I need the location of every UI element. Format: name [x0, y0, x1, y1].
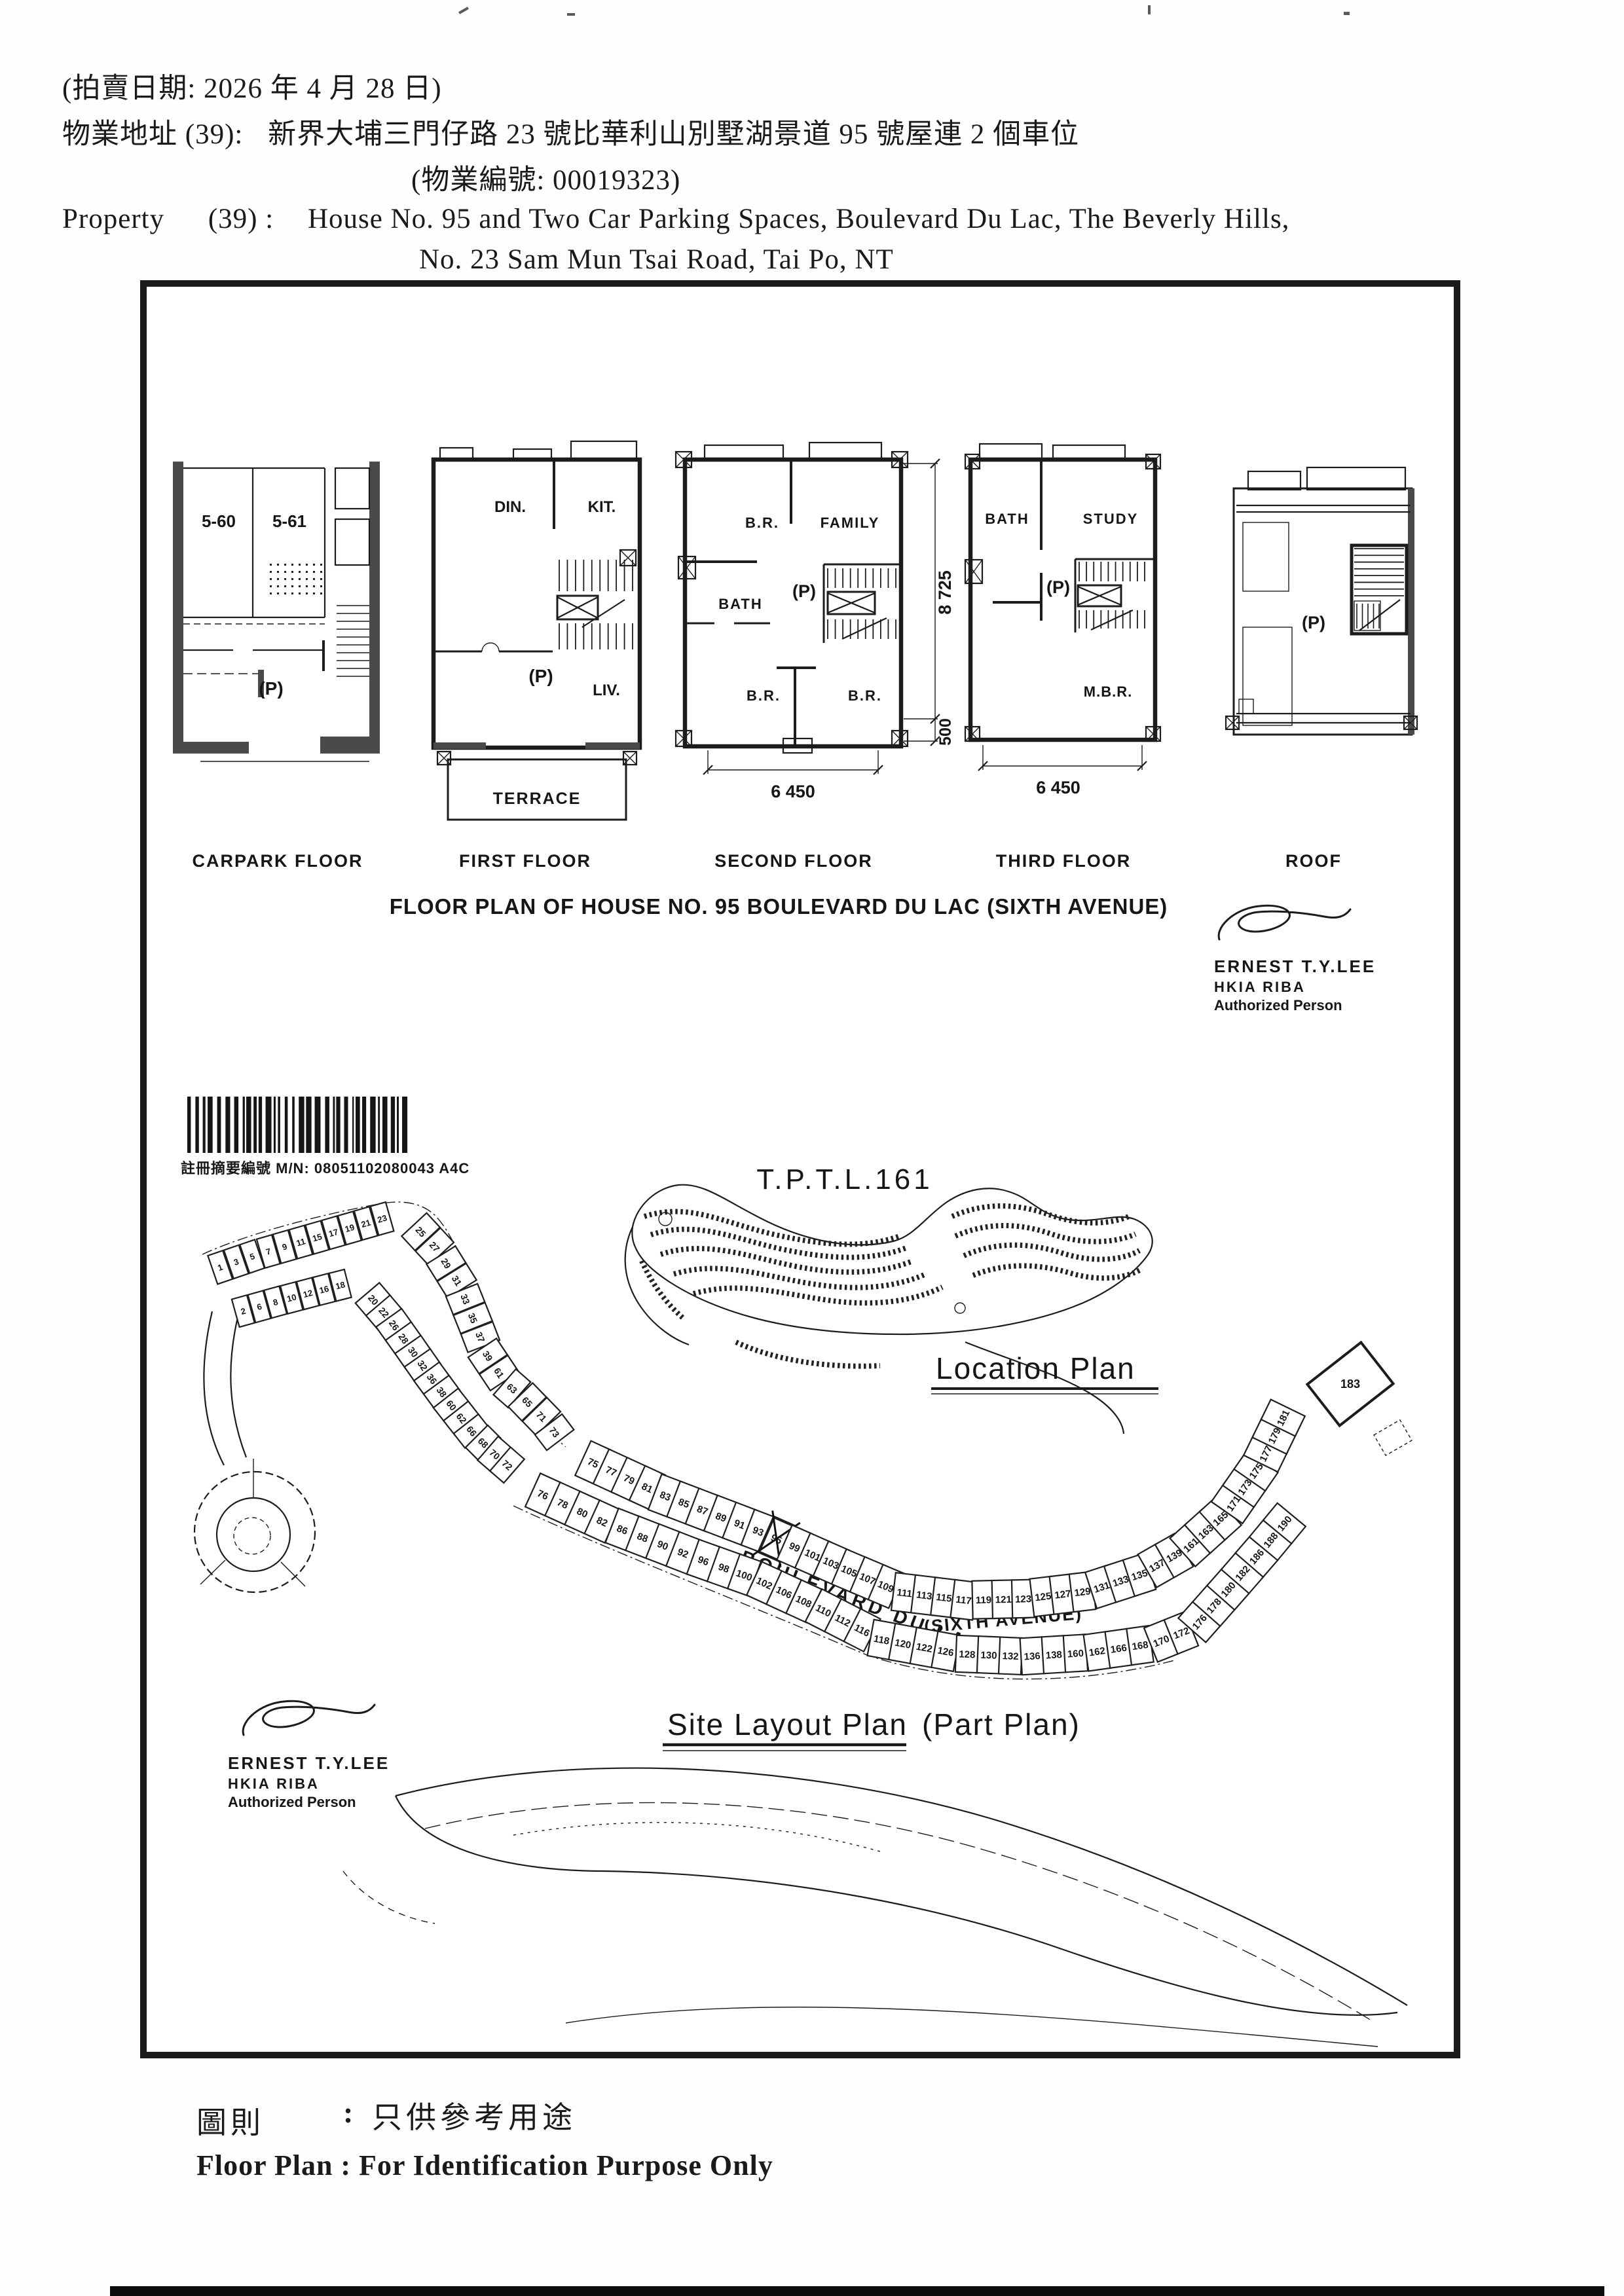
- second-family-label: FAMILY: [821, 515, 880, 531]
- barcode-bar: [315, 1097, 321, 1153]
- architect-signature-top: ERNEST T.Y.LEE HKIA RIBA Authorized Pers…: [1214, 905, 1376, 1013]
- svg-text:119: 119: [976, 1595, 992, 1607]
- barcode-bar: [378, 1097, 380, 1153]
- barcode-bar: [397, 1097, 399, 1153]
- second-dim-500: 500: [936, 718, 955, 746]
- property-english-line: Property (39) : House No. 95 and Two Car…: [62, 203, 1289, 235]
- site-lot-183: 183: [1307, 1342, 1393, 1425]
- second-dim-6450: 6 450: [771, 782, 815, 801]
- architect-signature-bottom: ERNEST T.Y.LEE HKIA RIBA Authorized Pers…: [228, 1701, 390, 1810]
- first-liv-label: LIV.: [593, 682, 620, 699]
- roof-p-label: (P): [1302, 613, 1325, 632]
- architect-role: Authorized Person: [228, 1794, 356, 1810]
- site-plan-caption: Site Layout Plan(Part Plan): [667, 1707, 1080, 1741]
- carpark-stall-1-label: 5-60: [202, 511, 236, 531]
- scan-edge-strip: [110, 2286, 1604, 2296]
- third-mbr-label: M.B.R.: [1084, 683, 1132, 700]
- barcode-bar: [203, 1097, 206, 1153]
- svg-text:138: 138: [1045, 1649, 1062, 1661]
- barcode-bar: [333, 1097, 335, 1153]
- caption-second-floor: SECOND FLOOR: [714, 851, 873, 871]
- barcode-bar: [352, 1097, 354, 1153]
- scan-speck: [1344, 12, 1350, 15]
- architect-name: ERNEST T.Y.LEE: [228, 1753, 390, 1773]
- footer-zh-value: 只供參考用途: [372, 2094, 576, 2137]
- third-floor-plan: 6 450 BATH STUDY (P) M.B.R.: [965, 444, 1160, 797]
- barcode-bar: [208, 1097, 213, 1153]
- second-floor-plan: 8 725 500 6 450 B.R. FAMILY BATH (P) B.R…: [676, 443, 955, 801]
- site-lot: 130: [977, 1636, 1001, 1673]
- svg-text:136: 136: [1024, 1650, 1041, 1662]
- svg-text:115: 115: [935, 1592, 952, 1605]
- roof-plan: (P): [1226, 467, 1417, 735]
- property-english-line2: No. 23 Sam Mun Tsai Road, Tai Po, NT: [419, 244, 894, 276]
- barcode-bar: [344, 1097, 348, 1153]
- third-study-label: STUDY: [1083, 511, 1139, 527]
- first-terrace-label: TERRACE: [493, 790, 581, 808]
- property-number-line: (物業編號: 00019323): [411, 157, 680, 198]
- barcode: [187, 1097, 407, 1153]
- property-index: (39) :: [208, 204, 274, 234]
- barcode-bar: [234, 1097, 239, 1153]
- scan-speck: [567, 13, 575, 16]
- carpark-floor-plan: 5-60 5-61 (P): [173, 462, 380, 761]
- caption-first-floor: FIRST FLOOR: [459, 851, 591, 871]
- property-address-value: 新界大埔三門仔路 23 號比華利山別墅湖景道 95 號屋連 2 個車位: [268, 119, 1079, 150]
- footer-zh-label: 圖則: [196, 2099, 265, 2142]
- third-dim-6450: 6 450: [1036, 778, 1080, 797]
- barcode-bar: [356, 1097, 360, 1153]
- svg-text:117: 117: [955, 1594, 972, 1607]
- caption-roof: ROOF: [1285, 851, 1342, 871]
- footer-en-line: Floor Plan : For Identification Purpose …: [196, 2149, 773, 2182]
- second-p-label: (P): [792, 581, 816, 601]
- barcode-label: 註冊摘要編號 M/N: 08051102080043 A4C: [181, 1160, 470, 1176]
- plan-sheet-frame: 5-60 5-61 (P): [140, 280, 1460, 2058]
- second-br2-label: B.R.: [747, 687, 781, 704]
- barcode-bar: [217, 1097, 221, 1153]
- property-address-line: 物業地址 (39): 新界大埔三門仔路 23 號比華利山別墅湖景道 95 號屋連…: [62, 111, 1079, 152]
- barcode-bar: [370, 1097, 375, 1153]
- barcode-bar: [195, 1097, 198, 1153]
- contour-lines: [343, 1768, 1407, 2047]
- architect-name: ERNEST T.Y.LEE: [1214, 957, 1376, 976]
- barcode-bar: [259, 1097, 262, 1153]
- svg-text:113: 113: [915, 1590, 932, 1603]
- second-br1-label: B.R.: [745, 515, 779, 531]
- second-dim-8725: 8 725: [935, 570, 955, 615]
- barcode-bar: [187, 1097, 191, 1153]
- carpark-p-label: (P): [259, 678, 283, 699]
- barcode-bar: [362, 1097, 366, 1153]
- property-label: Property: [62, 204, 164, 234]
- second-bath-label: BATH: [718, 596, 762, 612]
- barcode-bar: [278, 1097, 280, 1153]
- signature-scribble: [1219, 905, 1350, 939]
- first-p-label: (P): [528, 666, 553, 686]
- svg-text:125: 125: [1034, 1590, 1052, 1603]
- svg-text:111: 111: [896, 1587, 913, 1600]
- scan-speck: [1148, 5, 1151, 14]
- svg-text:132: 132: [1002, 1650, 1019, 1662]
- scan-speck: [458, 7, 469, 14]
- barcode-bar: [285, 1097, 288, 1153]
- svg-text:121: 121: [995, 1594, 1012, 1606]
- first-floor-plan: DIN. KIT. (P) LIV. TERRACE: [434, 441, 640, 820]
- barcode-bar: [292, 1097, 295, 1153]
- third-p-label: (P): [1046, 577, 1070, 597]
- footer-zh-colon: :: [343, 2095, 357, 2130]
- barcode-bar: [225, 1097, 230, 1153]
- barcode-bar: [336, 1097, 340, 1153]
- barcode-bar: [274, 1097, 276, 1153]
- svg-text:123: 123: [1015, 1594, 1031, 1605]
- architect-quals: HKIA RIBA: [228, 1776, 320, 1792]
- property-value-en: House No. 95 and Two Car Parking Spaces,…: [308, 204, 1290, 234]
- barcode-bar: [391, 1097, 395, 1153]
- first-kit-label: KIT.: [588, 498, 616, 516]
- barcode-bar: [402, 1097, 407, 1153]
- barcode-bar: [243, 1097, 245, 1153]
- barcode-bar: [325, 1097, 329, 1153]
- location-plan-caption: Location Plan: [936, 1351, 1135, 1385]
- first-din-label: DIN.: [494, 498, 526, 516]
- svg-text:129: 129: [1074, 1586, 1092, 1599]
- caption-carpark-floor: CARPARK FLOOR: [193, 851, 363, 871]
- property-address-label: 物業地址 (39):: [62, 119, 243, 150]
- site-lot: 136: [1020, 1637, 1044, 1675]
- third-bath-label: BATH: [985, 511, 1029, 527]
- svg-text:183: 183: [1340, 1377, 1360, 1391]
- site-lot: 128: [955, 1635, 979, 1673]
- location-plan: T.P.T.L.161 Location Plan: [625, 1163, 1158, 1434]
- site-lot: 132: [999, 1637, 1022, 1675]
- tptl-lot-title: T.P.T.L.161: [756, 1163, 932, 1195]
- svg-text:168: 168: [1132, 1639, 1149, 1652]
- barcode-bar: [266, 1097, 272, 1153]
- barcode-bar: [382, 1097, 388, 1153]
- second-br3-label: B.R.: [848, 687, 882, 704]
- floor-plan-title: FLOOR PLAN OF HOUSE NO. 95 BOULEVARD DU …: [390, 894, 1168, 919]
- caption-third-floor: THIRD FLOOR: [996, 851, 1131, 871]
- carpark-stall-2-label: 5-61: [272, 511, 306, 531]
- svg-text:128: 128: [959, 1649, 976, 1660]
- svg-text:166: 166: [1110, 1643, 1128, 1656]
- plan-sheet-graphics: 5-60 5-61 (P): [147, 287, 1454, 2052]
- site-lot: 138: [1042, 1635, 1066, 1673]
- svg-text:162: 162: [1088, 1645, 1106, 1658]
- svg-text:130: 130: [980, 1650, 997, 1662]
- barcode-bar: [299, 1097, 304, 1153]
- signature-scribble: [243, 1701, 375, 1735]
- svg-text:127: 127: [1054, 1588, 1072, 1601]
- barcode-bar: [246, 1097, 251, 1153]
- architect-role: Authorized Person: [1214, 997, 1342, 1013]
- site-lot-chains: 1357911151719212326810121618252729313335…: [208, 1202, 1305, 1675]
- scanned-document-page: (拍賣日期: 2026 年 4 月 28 日) 物業地址 (39): 新界大埔三…: [0, 0, 1624, 2296]
- architect-quals: HKIA RIBA: [1214, 979, 1306, 995]
- barcode-bar: [253, 1097, 257, 1153]
- barcode-bar: [306, 1097, 311, 1153]
- auction-date-line: (拍賣日期: 2026 年 4 月 28 日): [62, 65, 442, 106]
- svg-text:160: 160: [1067, 1648, 1084, 1660]
